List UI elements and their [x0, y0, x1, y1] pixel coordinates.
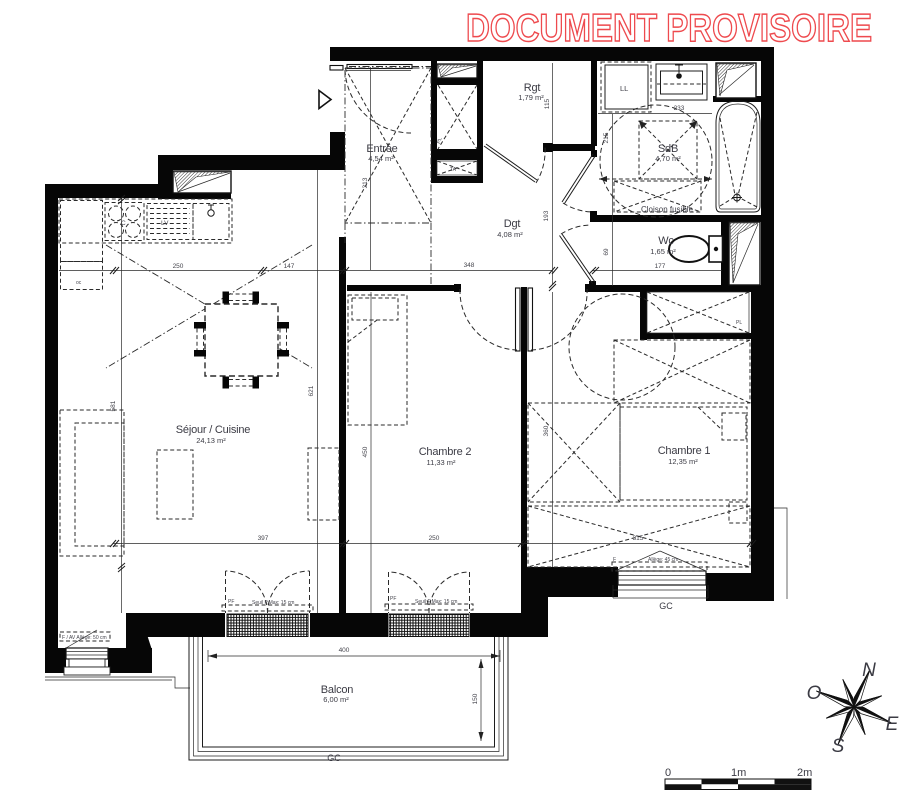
svg-text:GC: GC [659, 601, 673, 611]
svg-text:12,35 m²: 12,35 m² [668, 457, 698, 466]
svg-text:233: 233 [674, 105, 685, 112]
svg-text:4,54 m²: 4,54 m² [368, 154, 394, 163]
svg-text:177: 177 [655, 263, 666, 270]
svg-text:397: 397 [258, 535, 269, 542]
svg-text:250: 250 [429, 535, 440, 542]
svg-text:PF: PF [390, 596, 396, 602]
svg-text:N: N [862, 660, 876, 681]
svg-text:400: 400 [339, 647, 350, 654]
svg-text:0: 0 [665, 767, 671, 779]
svg-text:Wc: Wc [658, 235, 674, 247]
svg-text:6,00 m²: 6,00 m² [323, 695, 349, 704]
svg-text:360: 360 [543, 425, 550, 436]
svg-text:313: 313 [362, 177, 369, 188]
svg-text:193: 193 [543, 210, 550, 221]
svg-text:Séjour / Cuisine: Séjour / Cuisine [176, 424, 251, 436]
svg-text:GC: GC [327, 753, 341, 763]
svg-text:LL: LL [620, 84, 628, 93]
svg-text:E: E [886, 714, 899, 735]
svg-text:F: F [613, 557, 616, 563]
svg-text:F / AV Allège: 50 cm: F / AV Allège: 50 cm [62, 635, 107, 641]
svg-text:Chambre 2: Chambre 2 [419, 446, 472, 458]
svg-text:4,08 m²: 4,08 m² [497, 230, 523, 239]
svg-text:147: 147 [284, 263, 295, 270]
svg-text:1m: 1m [731, 767, 746, 779]
svg-text:348: 348 [464, 262, 475, 269]
svg-text:LV: LV [161, 220, 169, 227]
svg-text:DOCUMENT PROVISOIRE: DOCUMENT PROVISOIRE [466, 7, 872, 50]
svg-text:Cloison fusible: Cloison fusible [641, 205, 694, 214]
svg-text:315: 315 [633, 535, 644, 542]
svg-text:O: O [807, 683, 822, 704]
svg-text:4,70 m²: 4,70 m² [655, 154, 681, 163]
svg-text:S: S [832, 736, 845, 757]
svg-text:PL: PL [436, 137, 443, 145]
svg-text:Dgt: Dgt [504, 218, 521, 230]
svg-text:11,33 m²: 11,33 m² [426, 458, 456, 467]
svg-text:581: 581 [110, 400, 117, 411]
svg-text:Chambre 1: Chambre 1 [658, 445, 711, 457]
svg-text:621: 621 [308, 385, 315, 396]
svg-text:69: 69 [603, 248, 610, 256]
svg-text:oc: oc [76, 280, 82, 286]
svg-text:24,13 m²: 24,13 m² [196, 436, 226, 445]
svg-text:PF: PF [228, 599, 234, 605]
svg-text:450: 450 [362, 446, 369, 457]
svg-text:1,79 m²: 1,79 m² [518, 93, 544, 102]
svg-text:1,65 m²: 1,65 m² [650, 247, 676, 256]
svg-text:150: 150 [472, 693, 479, 704]
svg-text:215: 215 [603, 132, 610, 143]
svg-text:2m: 2m [797, 767, 812, 779]
svg-text:TA: TA [450, 167, 457, 173]
svg-text:115: 115 [544, 98, 551, 109]
svg-text:PL: PL [736, 320, 742, 326]
svg-text:Allège: 45 cm: Allège: 45 cm [648, 557, 678, 563]
svg-text:250: 250 [173, 263, 184, 270]
